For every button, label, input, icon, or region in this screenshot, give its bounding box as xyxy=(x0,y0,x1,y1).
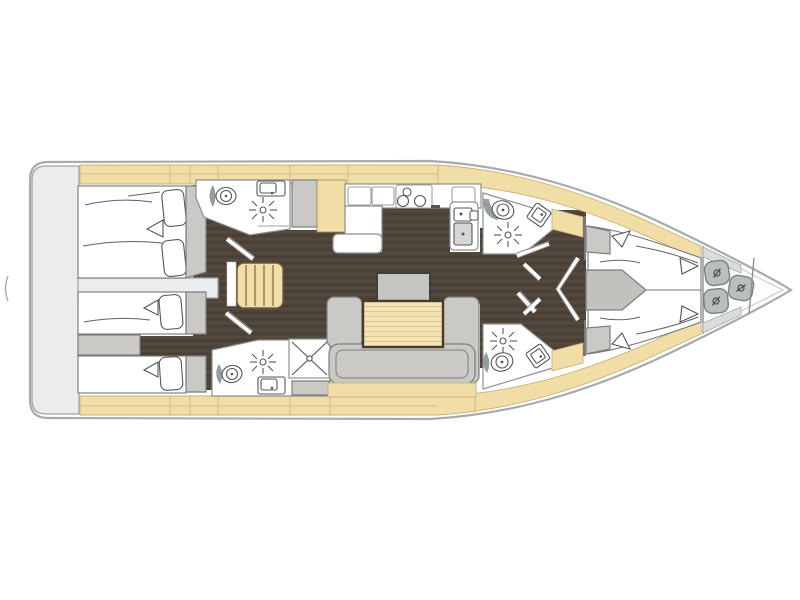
pillow xyxy=(159,294,184,330)
swim-ladder-icon xyxy=(6,276,9,301)
berth-head-shelf xyxy=(586,226,610,254)
stairwell-side xyxy=(227,262,236,306)
galley-counter-foot xyxy=(333,234,382,253)
wardrobe xyxy=(292,180,317,227)
companionway-stairs xyxy=(237,263,283,308)
counter-module xyxy=(348,187,371,205)
salon-table xyxy=(363,301,443,347)
aft-port-cabin xyxy=(78,186,206,278)
shower-seat xyxy=(292,381,329,395)
berth-divider xyxy=(78,335,140,355)
sofa-left-arm xyxy=(327,297,362,347)
stove-burners-icon xyxy=(396,185,432,208)
pillow xyxy=(161,239,187,277)
pillow xyxy=(159,356,183,390)
table-extension xyxy=(377,273,430,302)
counter-module xyxy=(452,187,475,203)
sofa-base-shelf xyxy=(328,383,476,397)
floor-plan-canvas xyxy=(0,0,800,600)
berth-head-shelf xyxy=(586,326,610,354)
yacht-floor-plan xyxy=(0,0,800,600)
sink-icon xyxy=(258,377,285,394)
counter-handle xyxy=(431,205,440,208)
fender xyxy=(703,288,729,314)
headboard xyxy=(186,356,206,392)
pillow xyxy=(161,189,187,227)
tall-cabinet xyxy=(317,180,346,232)
fender xyxy=(703,259,730,286)
aft-starboard-head xyxy=(212,339,330,396)
counter-module xyxy=(372,187,394,205)
bow-locker xyxy=(703,246,755,334)
swim-platform xyxy=(32,166,79,414)
headboard xyxy=(186,292,206,334)
shower-stall xyxy=(289,339,330,395)
sink-icon xyxy=(257,181,285,196)
